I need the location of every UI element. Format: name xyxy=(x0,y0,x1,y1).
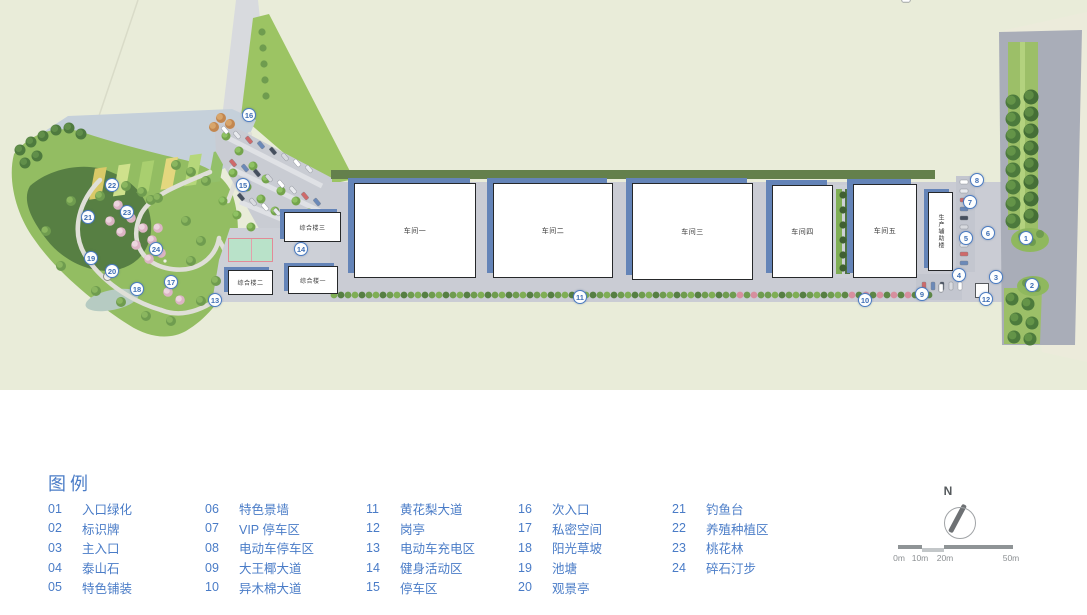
legend-column: 01入口绿化02标识牌03主入口04泰山石05特色铺装 xyxy=(48,499,132,597)
building-label: 综合楼二 xyxy=(237,278,263,287)
masterplan-page: 车间一 车间二 车间三 车间四 车间五 综合楼三 综合楼二 综合楼一 生产辅助楼… xyxy=(0,0,1087,615)
legend-item-label: 阳光草坡 xyxy=(552,538,602,557)
plan-marker-15: 15 xyxy=(236,178,250,192)
legend-item: 12岗亭 xyxy=(366,519,475,539)
legend-item-number: 17 xyxy=(518,521,552,535)
legend-item: 06特色景墙 xyxy=(205,499,314,519)
legend-item-label: 异木棉大道 xyxy=(239,578,302,597)
scale-label: 20m xyxy=(937,553,954,563)
plan-marker-6: 6 xyxy=(981,226,995,240)
plan-marker-21: 21 xyxy=(81,210,95,224)
legend-item: 16次入口 xyxy=(518,499,602,519)
legend-item-label: 电动车充电区 xyxy=(400,538,475,557)
plan-marker-11: 11 xyxy=(573,290,587,304)
building-workshop-4: 车间四 xyxy=(772,185,833,278)
scale-label: 10m xyxy=(912,553,929,563)
legend-item-label: 标识牌 xyxy=(82,519,120,538)
plan-marker-14: 14 xyxy=(294,242,308,256)
legend-item-number: 24 xyxy=(672,561,706,575)
legend-item-number: 21 xyxy=(672,502,706,516)
building-label: 生产辅助楼 xyxy=(936,214,945,249)
legend-item-label: 岗亭 xyxy=(400,519,425,538)
plan-marker-8: 8 xyxy=(970,173,984,187)
scale-bar-segment xyxy=(944,545,1013,549)
scale-label: 50m xyxy=(1003,553,1020,563)
legend-item-number: 18 xyxy=(518,541,552,555)
plan-marker-23: 23 xyxy=(120,205,134,219)
building-label: 综合楼三 xyxy=(299,223,325,232)
building-workshop-2: 车间二 xyxy=(493,183,613,278)
legend-item-label: 桃花林 xyxy=(706,538,744,557)
plan-marker-22: 22 xyxy=(105,178,119,192)
legend-item: 21钓鱼台 xyxy=(672,499,769,519)
legend-item-number: 15 xyxy=(366,580,400,594)
plan-marker-2: 2 xyxy=(1025,278,1039,292)
legend-column: 11黄花梨大道12岗亭13电动车充电区14健身活动区15停车区 xyxy=(366,499,475,597)
legend-item-label: 私密空间 xyxy=(552,519,602,538)
plan-marker-12: 12 xyxy=(979,292,993,306)
legend-item: 14健身活动区 xyxy=(366,558,475,578)
building-complex-1: 综合楼一 xyxy=(288,266,338,294)
legend-item: 23桃花林 xyxy=(672,538,769,558)
building-label: 车间三 xyxy=(681,227,704,237)
plan-marker-13: 13 xyxy=(208,293,222,307)
legend-item-label: 特色铺装 xyxy=(82,578,132,597)
legend-item-label: 主入口 xyxy=(82,538,120,557)
plan-marker-4: 4 xyxy=(952,268,966,282)
legend-item-number: 11 xyxy=(366,502,400,516)
legend-item: 09大王椰大道 xyxy=(205,558,314,578)
legend-item: 03主入口 xyxy=(48,538,132,558)
legend-item-number: 20 xyxy=(518,580,552,594)
legend-item: 13电动车充电区 xyxy=(366,538,475,558)
legend-item: 15停车区 xyxy=(366,577,475,597)
legend-item-number: 02 xyxy=(48,521,82,535)
legend-item-label: VIP 停车区 xyxy=(239,519,300,538)
legend-item-number: 04 xyxy=(48,561,82,575)
plan-marker-1: 1 xyxy=(1019,231,1033,245)
legend-item-number: 07 xyxy=(205,521,239,535)
legend-item-label: 观景亭 xyxy=(552,578,590,597)
legend-item: 02标识牌 xyxy=(48,519,132,539)
building-label: 综合楼一 xyxy=(300,276,326,285)
plan-marker-7: 7 xyxy=(963,195,977,209)
building-workshop-3: 车间三 xyxy=(632,183,753,280)
legend-item: 04泰山石 xyxy=(48,558,132,578)
legend-item-label: 养殖种植区 xyxy=(706,519,769,538)
building-workshop-1: 车间一 xyxy=(354,183,476,278)
scale-label: 0m xyxy=(893,553,905,563)
legend-item-label: 健身活动区 xyxy=(400,558,463,577)
plan-marker-16: 16 xyxy=(242,108,256,122)
plan-marker-19: 19 xyxy=(84,251,98,265)
legend-column: 16次入口17私密空间18阳光草坡19池塘20观景亭 xyxy=(518,499,602,597)
legend-item-label: 泰山石 xyxy=(82,558,120,577)
legend-item-number: 01 xyxy=(48,502,82,516)
legend-item: 07VIP 停车区 xyxy=(205,519,314,539)
legend-item-label: 黄花梨大道 xyxy=(400,499,463,518)
plan-marker-18: 18 xyxy=(130,282,144,296)
legend-item-number: 10 xyxy=(205,580,239,594)
plan-marker-17: 17 xyxy=(164,275,178,289)
building-label: 车间一 xyxy=(404,226,427,236)
corridor-planting xyxy=(845,189,850,274)
scale-bar-segment xyxy=(922,548,944,552)
building-label: 车间四 xyxy=(791,227,814,237)
legend-item: 19池塘 xyxy=(518,558,602,578)
legend-item-number: 13 xyxy=(366,541,400,555)
legend-item-label: 池塘 xyxy=(552,558,577,577)
legend-item-number: 06 xyxy=(205,502,239,516)
legend-title: 图例 xyxy=(48,470,92,496)
plan-marker-10: 10 xyxy=(858,293,872,307)
legend-item: 18阳光草坡 xyxy=(518,538,602,558)
corridor-planting xyxy=(836,189,842,274)
compass-circle-icon xyxy=(944,507,976,539)
building-complex-3: 综合楼三 xyxy=(284,212,341,242)
legend-item-number: 16 xyxy=(518,502,552,516)
north-hedge xyxy=(331,170,935,179)
plan-marker-24: 24 xyxy=(149,242,163,256)
legend-item: 24碎石汀步 xyxy=(672,558,769,578)
building-label: 车间二 xyxy=(542,226,565,236)
scale-bar-segment xyxy=(898,545,922,549)
legend-item-label: 停车区 xyxy=(400,578,438,597)
legend-item-number: 05 xyxy=(48,580,82,594)
legend-item: 20观景亭 xyxy=(518,577,602,597)
site-plan: 车间一 车间二 车间三 车间四 车间五 综合楼三 综合楼二 综合楼一 生产辅助楼… xyxy=(0,0,1087,390)
legend-item-label: 电动车停车区 xyxy=(239,538,314,557)
legend-item: 22养殖种植区 xyxy=(672,519,769,539)
legend-item-label: 特色景墙 xyxy=(239,499,289,518)
plan-marker-20: 20 xyxy=(105,264,119,278)
fitness-court xyxy=(228,238,273,262)
legend-item-label: 大王椰大道 xyxy=(239,558,302,577)
legend-item-number: 22 xyxy=(672,521,706,535)
legend-item: 01入口绿化 xyxy=(48,499,132,519)
legend-item: 11黄花梨大道 xyxy=(366,499,475,519)
legend-item-number: 03 xyxy=(48,541,82,555)
legend-item-number: 09 xyxy=(205,561,239,575)
legend-item-number: 08 xyxy=(205,541,239,555)
north-label: N xyxy=(938,484,958,498)
building-complex-2: 综合楼二 xyxy=(228,270,273,295)
legend-column: 21钓鱼台22养殖种植区23桃花林24碎石汀步 xyxy=(672,499,769,577)
legend-item: 10异木棉大道 xyxy=(205,577,314,597)
legend-item-number: 19 xyxy=(518,561,552,575)
building-production-aux: 生产辅助楼 xyxy=(928,192,953,271)
building-workshop-5: 车间五 xyxy=(853,184,917,278)
legend-item-number: 12 xyxy=(366,521,400,535)
legend-item-label: 入口绿化 xyxy=(82,499,132,518)
legend-item-label: 次入口 xyxy=(552,499,590,518)
legend-item: 05特色铺装 xyxy=(48,577,132,597)
plan-marker-9: 9 xyxy=(915,287,929,301)
plan-marker-5: 5 xyxy=(959,231,973,245)
building-label: 车间五 xyxy=(874,226,897,236)
legend-column: 06特色景墙07VIP 停车区08电动车停车区09大王椰大道10异木棉大道 xyxy=(205,499,314,597)
legend-item-label: 钓鱼台 xyxy=(706,499,744,518)
legend-item-number: 14 xyxy=(366,561,400,575)
plan-marker-3: 3 xyxy=(989,270,1003,284)
legend-item: 08电动车停车区 xyxy=(205,538,314,558)
legend-item-label: 碎石汀步 xyxy=(706,558,756,577)
legend-item: 17私密空间 xyxy=(518,519,602,539)
legend-item-number: 23 xyxy=(672,541,706,555)
